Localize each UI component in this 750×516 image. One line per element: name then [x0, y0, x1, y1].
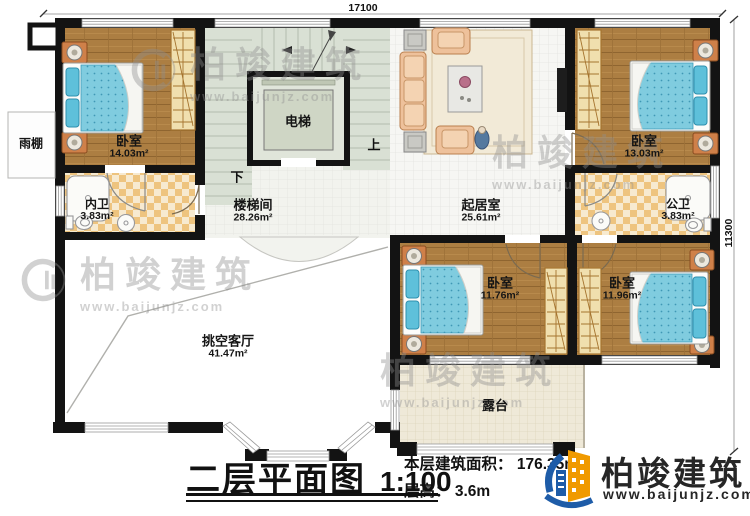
company-logo-icon [542, 444, 600, 510]
floorplan-svg [0, 0, 750, 516]
dimension-top: 17100 [348, 2, 377, 14]
void-boundary-line [67, 247, 388, 413]
canopy-outline [8, 112, 55, 178]
elevator-shaft [250, 74, 347, 167]
floorplan-page: 柏竣建筑 www.baijunjz.com 柏竣建筑 www.baijunjz.… [0, 0, 750, 516]
floor-height-line: 层高： 3.6m [404, 479, 490, 501]
living-furniture [400, 28, 532, 154]
dimension-right: 11300 [723, 219, 735, 248]
footer-company-website: www.baijunjz.com [603, 486, 750, 502]
title-underline-2 [186, 500, 438, 502]
stair-up-label: 上 [367, 135, 380, 154]
title-underline [186, 493, 438, 496]
stair-down-label: 下 [230, 167, 243, 186]
